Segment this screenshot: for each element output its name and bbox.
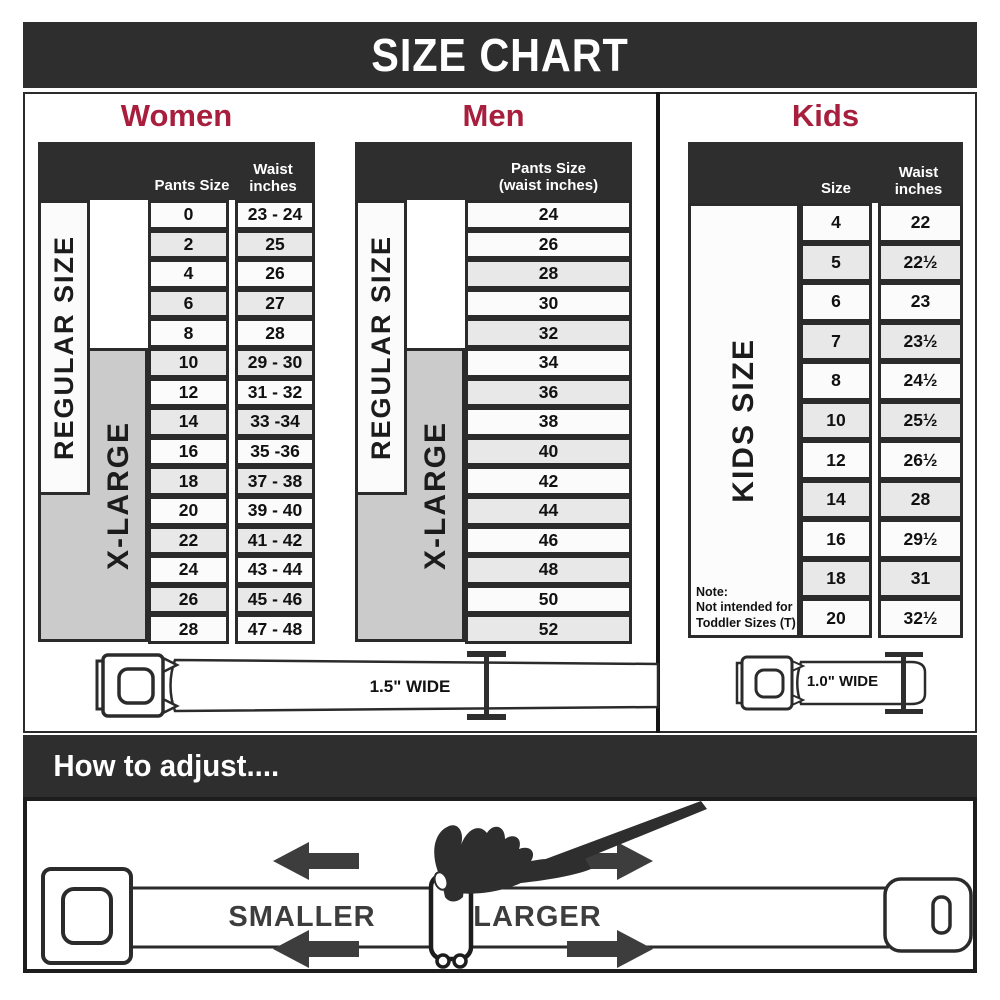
kids-note-title: Note: <box>696 585 728 599</box>
size-row: 34 <box>465 348 632 378</box>
women-waist-header: Waist inches <box>234 161 312 195</box>
adjuster-bump-right <box>454 955 466 967</box>
kids-waist-line1: Waist <box>899 164 938 181</box>
belt-tip <box>885 879 971 951</box>
men-size-rows: 242628303234363840424446485052 <box>465 200 632 644</box>
size-cell: 4 <box>800 203 872 243</box>
size-cell: 25½ <box>878 401 963 441</box>
women-heading: Women <box>38 96 315 136</box>
size-cell: 8 <box>148 318 229 348</box>
size-cell: 33 -34 <box>235 407 315 437</box>
men-regular-box: REGULAR SIZE <box>355 200 407 495</box>
size-row: 26 <box>465 230 632 260</box>
kids-belt-width-label: 1.0" WIDE <box>795 673 890 690</box>
size-cell: 52 <box>465 614 632 644</box>
size-row: 023 - 24 <box>148 200 315 230</box>
size-cell: 42 <box>465 466 632 496</box>
size-cell: 16 <box>148 437 229 467</box>
kids-size-header: Size <box>800 180 872 197</box>
size-cell: 20 <box>800 598 872 638</box>
size-cell: 12 <box>800 440 872 480</box>
size-cell: 38 <box>465 407 632 437</box>
size-cell: 29 - 30 <box>235 348 315 378</box>
size-row: 824½ <box>800 361 963 401</box>
size-row: 1635 -36 <box>148 437 315 467</box>
size-cell: 26 <box>148 585 229 615</box>
size-cell: 28 <box>235 318 315 348</box>
kids-size-label: KIDS SIZE <box>727 338 761 503</box>
size-cell: 14 <box>148 407 229 437</box>
size-row: 2241 - 42 <box>148 526 315 556</box>
arrow-left-top <box>273 842 359 880</box>
women-table-header: Pants Size Waist inches <box>38 142 315 200</box>
size-cell: 23½ <box>878 322 963 362</box>
size-row: 24 <box>465 200 632 230</box>
size-cell: 16 <box>800 519 872 559</box>
kids-note: Note: Not intended for Toddler Sizes (T) <box>696 585 798 632</box>
size-row: 522½ <box>800 243 963 283</box>
size-row: 52 <box>465 614 632 644</box>
size-row: 32 <box>465 318 632 348</box>
size-row: 48 <box>465 555 632 585</box>
size-cell: 14 <box>800 480 872 520</box>
adjust-belt-illustration <box>27 801 973 969</box>
size-row: 2039 - 40 <box>148 496 315 526</box>
size-row: 723½ <box>800 322 963 362</box>
men-pants-size-header: Pants Size (waist inches) <box>467 160 630 194</box>
women-pants-size-header: Pants Size <box>148 177 236 194</box>
hand-illustration <box>432 801 707 902</box>
size-cell: 6 <box>148 289 229 319</box>
buckle-button <box>63 889 111 943</box>
size-row: 1629½ <box>800 519 963 559</box>
size-row: 30 <box>465 289 632 319</box>
size-cell: 30 <box>465 289 632 319</box>
smaller-label: SMALLER <box>217 901 387 934</box>
adjust-panel: SMALLER LARGER <box>23 797 977 973</box>
women-xlarge-label: X-LARGE <box>102 421 136 570</box>
arrow-right-bottom <box>567 930 653 968</box>
women-waist-line2: inches <box>249 178 297 195</box>
size-row: 28 <box>465 259 632 289</box>
size-row: 1837 - 38 <box>148 466 315 496</box>
size-cell: 10 <box>148 348 229 378</box>
size-cell: 32½ <box>878 598 963 638</box>
size-cell: 26½ <box>878 440 963 480</box>
women-size-rows: 023 - 242254266278281029 - 301231 - 3214… <box>148 200 315 644</box>
belt-tip-slot <box>933 897 950 933</box>
kids-heading: Kids <box>688 96 963 136</box>
size-cell: 34 <box>465 348 632 378</box>
size-cell: 22 <box>878 203 963 243</box>
size-cell: 4 <box>148 259 229 289</box>
size-row: 50 <box>465 585 632 615</box>
size-row: 2645 - 46 <box>148 585 315 615</box>
size-cell: 8 <box>800 361 872 401</box>
size-row: 40 <box>465 437 632 467</box>
size-chart-page: SIZE CHART Women Men Kids Pants Size Wai… <box>0 0 1000 1000</box>
how-to-adjust-band: How to adjust.... <box>23 735 977 797</box>
men-regular-label: REGULAR SIZE <box>366 235 397 460</box>
size-cell: 24½ <box>878 361 963 401</box>
size-row: 627 <box>148 289 315 319</box>
size-cell: 40 <box>465 437 632 467</box>
size-row: 623 <box>800 282 963 322</box>
size-row: 36 <box>465 378 632 408</box>
size-row: 225 <box>148 230 315 260</box>
size-row: 2443 - 44 <box>148 555 315 585</box>
kids-note-body: Not intended for Toddler Sizes (T) <box>696 600 796 630</box>
size-row: 46 <box>465 526 632 556</box>
adult-belt-width-label: 1.5" WIDE <box>340 677 480 697</box>
size-row: 44 <box>465 496 632 526</box>
size-cell: 10 <box>800 401 872 441</box>
size-cell: 2 <box>148 230 229 260</box>
kids-size-box: KIDS SIZE Note: Not intended for Toddler… <box>688 203 800 638</box>
size-row: 828 <box>148 318 315 348</box>
how-to-adjust-heading: How to adjust.... <box>23 748 279 784</box>
size-cell: 47 - 48 <box>235 614 315 644</box>
kids-waist-header: Waist inches <box>876 164 961 198</box>
size-cell: 45 - 46 <box>235 585 315 615</box>
size-cell: 28 <box>878 480 963 520</box>
size-cell: 43 - 44 <box>235 555 315 585</box>
size-cell: 26 <box>235 259 315 289</box>
arrow-left-bottom <box>273 930 359 968</box>
men-pants-line2: (waist inches) <box>499 177 598 194</box>
size-cell: 37 - 38 <box>235 466 315 496</box>
size-cell: 28 <box>465 259 632 289</box>
size-cell: 26 <box>465 230 632 260</box>
men-pants-line1: Pants Size <box>511 160 586 177</box>
size-row: 1433 -34 <box>148 407 315 437</box>
buckle-button <box>119 669 153 703</box>
women-xlarge-label-holder: X-LARGE <box>90 348 148 642</box>
men-table-header: Pants Size (waist inches) <box>355 142 632 200</box>
larger-label: LARGER <box>455 901 620 934</box>
size-cell: 0 <box>148 200 229 230</box>
kids-table-header: Size Waist inches <box>688 142 963 203</box>
size-cell: 50 <box>465 585 632 615</box>
women-waist-line1: Waist <box>253 161 292 178</box>
size-row: 1226½ <box>800 440 963 480</box>
size-row: 1831 <box>800 559 963 599</box>
kids-waist-line2: inches <box>895 181 943 198</box>
size-cell: 22 <box>148 526 229 556</box>
women-regular-label: REGULAR SIZE <box>49 235 80 460</box>
size-row: 422 <box>800 203 963 243</box>
size-cell: 24 <box>465 200 632 230</box>
size-cell: 44 <box>465 496 632 526</box>
size-cell: 24 <box>148 555 229 585</box>
size-row: 1231 - 32 <box>148 378 315 408</box>
size-cell: 35 -36 <box>235 437 315 467</box>
size-cell: 28 <box>148 614 229 644</box>
size-row: 2032½ <box>800 598 963 638</box>
page-title: SIZE CHART <box>371 28 628 82</box>
size-cell: 36 <box>465 378 632 408</box>
size-cell: 18 <box>800 559 872 599</box>
size-cell: 23 <box>878 282 963 322</box>
size-cell: 22½ <box>878 243 963 283</box>
size-cell: 12 <box>148 378 229 408</box>
size-cell: 5 <box>800 243 872 283</box>
size-cell: 25 <box>235 230 315 260</box>
size-cell: 27 <box>235 289 315 319</box>
size-row: 2847 - 48 <box>148 614 315 644</box>
size-row: 1029 - 30 <box>148 348 315 378</box>
size-cell: 46 <box>465 526 632 556</box>
kids-panel-divider <box>656 92 660 733</box>
kids-size-rows: 422522½623723½824½1025½1226½14281629½183… <box>800 203 963 638</box>
size-row: 1428 <box>800 480 963 520</box>
size-cell: 20 <box>148 496 229 526</box>
buckle-button <box>756 670 783 697</box>
size-cell: 31 - 32 <box>235 378 315 408</box>
size-cell: 41 - 42 <box>235 526 315 556</box>
size-row: 42 <box>465 466 632 496</box>
size-row: 426 <box>148 259 315 289</box>
size-cell: 7 <box>800 322 872 362</box>
size-cell: 6 <box>800 282 872 322</box>
size-cell: 23 - 24 <box>235 200 315 230</box>
size-cell: 31 <box>878 559 963 599</box>
title-bar: SIZE CHART <box>23 22 977 88</box>
adjuster-bump-left <box>437 955 449 967</box>
women-regular-box: REGULAR SIZE <box>38 200 90 495</box>
size-cell: 39 - 40 <box>235 496 315 526</box>
size-cell: 32 <box>465 318 632 348</box>
men-xlarge-label: X-LARGE <box>419 421 453 570</box>
size-row: 1025½ <box>800 401 963 441</box>
size-cell: 18 <box>148 466 229 496</box>
men-xlarge-label-holder: X-LARGE <box>407 348 465 642</box>
size-cell: 48 <box>465 555 632 585</box>
size-cell: 29½ <box>878 519 963 559</box>
men-heading: Men <box>355 96 632 136</box>
size-row: 38 <box>465 407 632 437</box>
